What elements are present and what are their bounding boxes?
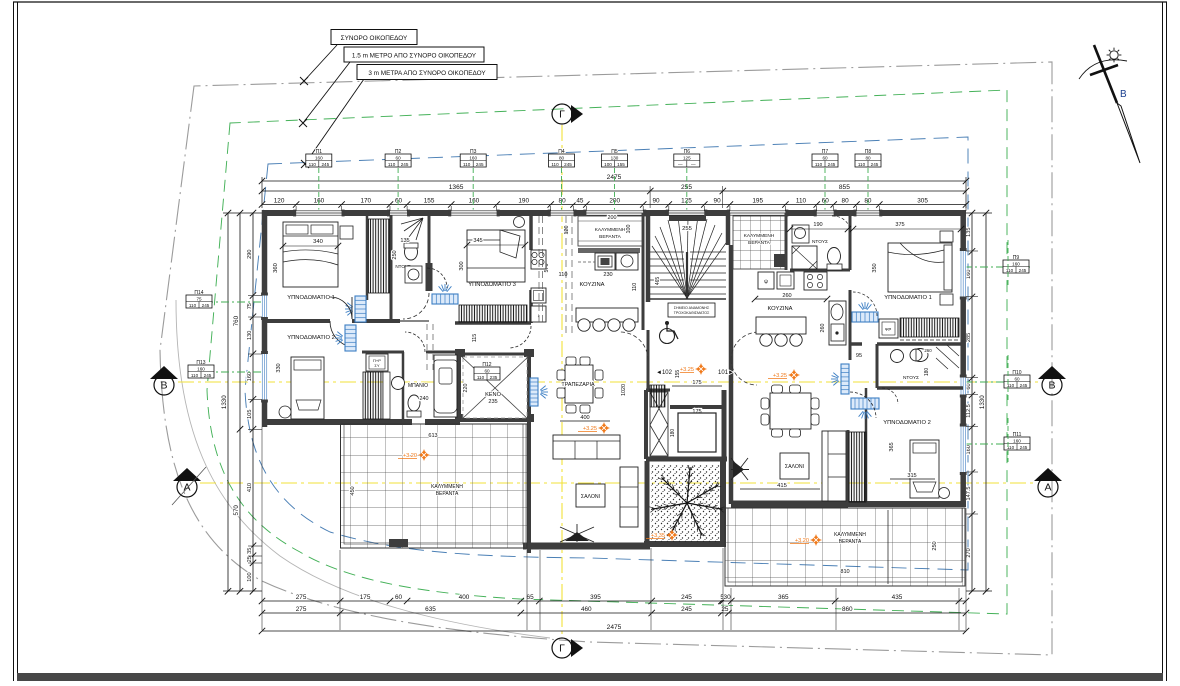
svg-text:195: 195 — [752, 198, 763, 205]
svg-text:ΒΕΡΑΝΤΑ: ΒΕΡΑΝΤΑ — [748, 240, 770, 246]
svg-text:345: 345 — [473, 238, 482, 244]
svg-text:275: 275 — [296, 606, 307, 613]
svg-text:1330: 1330 — [979, 395, 986, 409]
svg-text:613: 613 — [428, 433, 437, 439]
svg-text:ΨΡ: ΨΡ — [885, 327, 892, 332]
svg-text:ΥΠΝΟΔΩΜΑΤΙΟ 2: ΥΠΝΟΔΩΜΑΤΙΟ 2 — [287, 335, 335, 341]
svg-text:570: 570 — [233, 505, 240, 516]
svg-text:2475: 2475 — [607, 624, 622, 631]
svg-text:190: 190 — [518, 198, 529, 205]
svg-text:◄102: ◄102 — [656, 370, 673, 376]
svg-text:60: 60 — [396, 155, 402, 160]
svg-text:245: 245 — [1020, 445, 1028, 450]
svg-text:110: 110 — [309, 162, 317, 167]
svg-text:ΥΠΝΟΔΩΜΑΤΙΟ 1: ΥΠΝΟΔΩΜΑΤΙΟ 1 — [884, 295, 932, 301]
svg-text:ΚΟΥΖΙΝΑ: ΚΟΥΖΙΝΑ — [579, 282, 604, 288]
svg-text:245: 245 — [202, 303, 210, 308]
svg-text:260: 260 — [820, 324, 826, 333]
svg-text:240: 240 — [420, 396, 429, 402]
svg-text:160: 160 — [469, 198, 480, 205]
svg-text:135: 135 — [400, 238, 409, 244]
svg-text:230: 230 — [603, 272, 612, 278]
svg-text:250: 250 — [932, 541, 938, 550]
svg-text:ΝΤΟΥΣ: ΝΤΟΥΣ — [903, 375, 919, 381]
svg-text:110: 110 — [796, 198, 807, 205]
svg-text:305: 305 — [917, 198, 928, 205]
svg-text:30: 30 — [724, 594, 732, 601]
svg-text:1020: 1020 — [621, 384, 627, 396]
svg-text:110: 110 — [632, 283, 638, 292]
svg-text:ΒΕΡΑΝΤΑ: ΒΕΡΑΝΤΑ — [839, 539, 862, 545]
svg-text:855: 855 — [839, 184, 850, 191]
svg-text:175: 175 — [692, 380, 701, 386]
svg-text:465: 465 — [655, 277, 661, 286]
svg-text:45: 45 — [576, 198, 584, 205]
svg-text:120: 120 — [274, 198, 285, 205]
svg-text:120: 120 — [564, 226, 570, 235]
svg-text:1330: 1330 — [221, 395, 228, 409]
svg-text:135: 135 — [966, 228, 972, 237]
svg-text:300: 300 — [459, 261, 465, 270]
svg-text:110: 110 — [388, 162, 396, 167]
svg-text:400: 400 — [459, 594, 470, 601]
svg-text:60: 60 — [822, 155, 828, 160]
svg-text:B: B — [1120, 89, 1127, 100]
svg-text:ΤΡΟΧΟΚΑΘΙΣΜΑΤΟΣ: ΤΡΟΧΟΚΑΘΙΣΜΑΤΟΣ — [674, 311, 710, 315]
svg-text:115: 115 — [472, 334, 478, 343]
svg-text:270: 270 — [966, 548, 972, 557]
svg-text:95: 95 — [856, 353, 862, 359]
svg-text:180: 180 — [670, 429, 676, 438]
svg-text:ψ: ψ — [764, 279, 768, 285]
svg-text:ΚΑΛΥΜΜΕΝΗ: ΚΑΛΥΜΜΕΝΗ — [431, 484, 463, 490]
svg-text:130: 130 — [611, 155, 619, 160]
svg-text:147.5: 147.5 — [966, 487, 972, 501]
svg-text:160: 160 — [197, 366, 205, 371]
svg-text:245: 245 — [828, 162, 836, 167]
svg-text:ΚΑΛΥΜΜΕΝΗ: ΚΑΛΥΜΜΕΝΗ — [595, 227, 626, 233]
svg-text:245: 245 — [1019, 268, 1027, 273]
svg-text:25: 25 — [247, 556, 253, 562]
svg-text:112.5: 112.5 — [966, 404, 972, 418]
svg-text:175: 175 — [360, 594, 371, 601]
svg-text:A: A — [1044, 482, 1051, 494]
svg-text:365: 365 — [889, 442, 895, 451]
svg-text:60: 60 — [395, 594, 403, 601]
svg-text:125: 125 — [683, 155, 691, 160]
svg-text:260: 260 — [782, 293, 791, 299]
svg-text:160: 160 — [1012, 261, 1020, 266]
svg-text:330: 330 — [276, 363, 282, 372]
svg-text:110: 110 — [477, 375, 485, 380]
svg-text:340: 340 — [313, 239, 323, 245]
svg-text:160: 160 — [315, 155, 323, 160]
svg-text:160: 160 — [247, 372, 253, 381]
svg-text:B: B — [160, 380, 167, 392]
svg-text:130: 130 — [247, 331, 253, 340]
svg-text:315: 315 — [907, 473, 916, 479]
svg-text:290: 290 — [247, 250, 253, 259]
svg-text:415: 415 — [777, 483, 787, 489]
svg-text:75: 75 — [196, 296, 202, 301]
svg-text:60: 60 — [966, 383, 972, 389]
svg-text:155: 155 — [675, 370, 681, 379]
svg-text:860: 860 — [842, 606, 853, 613]
svg-text:1.5 m ΜΕΤΡΟ ΑΠΟ ΣΥΝΟΡΟ ΟΙΚ: 1.5 m ΜΕΤΡΟ ΑΠΟ ΣΥΝΟΡΟ ΟΙΚΟΠΕΔΟΥ — [352, 53, 477, 60]
svg-text:ΚΕΝΟ: ΚΕΝΟ — [485, 392, 502, 398]
svg-text:245: 245 — [476, 162, 484, 167]
svg-text:245: 245 — [681, 594, 692, 601]
svg-text:450: 450 — [350, 486, 356, 495]
svg-text:200: 200 — [608, 215, 617, 221]
svg-text:110: 110 — [815, 162, 823, 167]
svg-text:400: 400 — [580, 415, 589, 421]
svg-text:100: 100 — [604, 162, 612, 167]
svg-text:635: 635 — [425, 606, 436, 613]
svg-text:275: 275 — [296, 594, 307, 601]
svg-text:110: 110 — [551, 162, 559, 167]
svg-text:ΥΠΝΟΔΩΜΑΤΙΟ 3: ΥΠΝΟΔΩΜΑΤΙΟ 3 — [468, 282, 516, 288]
svg-text:60: 60 — [484, 368, 490, 373]
svg-text:101►: 101► — [718, 370, 734, 376]
svg-text:170: 170 — [360, 198, 371, 205]
svg-text:ΥΠΝΟΔΩΜΑΤΙΟ 1: ΥΠΝΟΔΩΜΑΤΙΟ 1 — [287, 295, 335, 301]
svg-text:100: 100 — [247, 572, 253, 581]
svg-text:25: 25 — [721, 606, 729, 613]
svg-text:80: 80 — [559, 198, 567, 205]
svg-text:350: 350 — [872, 263, 878, 272]
svg-text:ΤΡΑΠΕΖΑΡΙΑ: ΤΡΑΠΕΖΑΡΙΑ — [561, 382, 595, 388]
svg-text:235: 235 — [490, 375, 498, 380]
svg-text:245: 245 — [681, 606, 692, 613]
svg-text:250: 250 — [392, 250, 398, 259]
svg-text:1365: 1365 — [449, 184, 464, 191]
svg-text:35: 35 — [247, 548, 253, 554]
svg-text:3 m ΜΕΤΡΑ ΑΠΟ ΣΥΝΟΡΟ ΟΙΚΟΠ: 3 m ΜΕΤΡΑ ΑΠΟ ΣΥΝΟΡΟ ΟΙΚΟΠΕΔΟΥ — [368, 70, 486, 77]
svg-text:60: 60 — [1014, 376, 1020, 381]
svg-text:110: 110 — [191, 373, 199, 378]
svg-text:180: 180 — [924, 368, 930, 377]
svg-text:220: 220 — [463, 384, 469, 393]
svg-text:245: 245 — [401, 162, 409, 167]
svg-text:375: 375 — [895, 222, 904, 228]
svg-text:ΣΥ: ΣΥ — [374, 363, 379, 368]
svg-text:80: 80 — [865, 155, 871, 160]
svg-text:ΜΠΑΝΙΟ: ΜΠΑΝΙΟ — [408, 383, 428, 389]
svg-text:160: 160 — [966, 270, 972, 279]
svg-text:245: 245 — [204, 373, 212, 378]
svg-text:ΚΑΛΥΜΜΕΝΗ: ΚΑΛΥΜΜΕΝΗ — [744, 233, 775, 239]
svg-text:—: — — [691, 162, 696, 167]
svg-text:110: 110 — [189, 303, 197, 308]
svg-text:ΣΗΜΕΙΟ ΑΝΑΜΟΝΗΣ: ΣΗΜΕΙΟ ΑΝΑΜΟΝΗΣ — [674, 306, 710, 310]
svg-text:↓: ↓ — [537, 313, 540, 319]
svg-text:155: 155 — [424, 198, 435, 205]
svg-text:Γ: Γ — [559, 109, 565, 121]
svg-text:ΝΤΟΥΣ: ΝΤΟΥΣ — [812, 239, 828, 245]
svg-text:105: 105 — [247, 410, 253, 419]
svg-text:80: 80 — [842, 198, 850, 205]
svg-text:410: 410 — [247, 483, 253, 492]
svg-text:—: — — [678, 162, 683, 167]
svg-text:60: 60 — [395, 198, 403, 205]
svg-text:155: 155 — [617, 162, 625, 167]
svg-text:810: 810 — [840, 569, 849, 575]
svg-text:65: 65 — [527, 594, 535, 601]
svg-text:190: 190 — [813, 222, 822, 228]
svg-text:100: 100 — [626, 225, 632, 234]
svg-text:260: 260 — [924, 348, 932, 353]
svg-text:395: 395 — [590, 594, 601, 601]
svg-text:760: 760 — [233, 315, 240, 326]
svg-text:75: 75 — [247, 303, 253, 309]
svg-text:90: 90 — [714, 198, 722, 205]
svg-text:110: 110 — [858, 162, 866, 167]
svg-text:ΣΥΝΟΡΟ ΟΙΚΟΠΕΔΟΥ: ΣΥΝΟΡΟ ΟΙΚΟΠΕΔΟΥ — [341, 35, 408, 42]
svg-text:245: 245 — [564, 162, 572, 167]
svg-text:ΣΑΛΟΝΙ: ΣΑΛΟΝΙ — [785, 464, 804, 470]
svg-text:ΣΑΛΟΝΙ: ΣΑΛΟΝΙ — [581, 494, 600, 500]
svg-text:110: 110 — [463, 162, 471, 167]
svg-text:110: 110 — [1006, 268, 1014, 273]
svg-text:B: B — [1048, 380, 1055, 392]
svg-text:80: 80 — [559, 155, 565, 160]
svg-text:ΚΑΛΥΜΜΕΝΗ: ΚΑΛΥΜΜΕΝΗ — [834, 532, 866, 538]
svg-text:285: 285 — [966, 333, 972, 342]
svg-text:160: 160 — [1013, 438, 1021, 443]
svg-text:A: A — [183, 482, 190, 494]
svg-text:245: 245 — [871, 162, 879, 167]
svg-text:160: 160 — [469, 155, 477, 160]
svg-text:90: 90 — [652, 198, 660, 205]
svg-text:255: 255 — [682, 226, 692, 232]
svg-text:245: 245 — [321, 162, 329, 167]
svg-text:ΒΕΡΑΝΤΑ: ΒΕΡΑΝΤΑ — [436, 491, 459, 497]
svg-text:235: 235 — [488, 399, 497, 405]
svg-text:435: 435 — [892, 594, 903, 601]
svg-text:Γ: Γ — [559, 643, 565, 655]
svg-text:360: 360 — [273, 263, 279, 273]
svg-text:ΒΕΡΑΝΤΑ: ΒΕΡΑΝΤΑ — [599, 234, 621, 240]
svg-text:245: 245 — [1020, 383, 1028, 388]
svg-text:160: 160 — [966, 445, 972, 454]
svg-text:460: 460 — [581, 606, 592, 613]
svg-text:ΚΟΥΖΙΝΑ: ΚΟΥΖΙΝΑ — [767, 306, 792, 312]
svg-text:ΥΠΝΟΔΩΜΑΤΙΟ 2: ΥΠΝΟΔΩΜΑΤΙΟ 2 — [883, 420, 931, 426]
svg-text:365: 365 — [778, 594, 789, 601]
